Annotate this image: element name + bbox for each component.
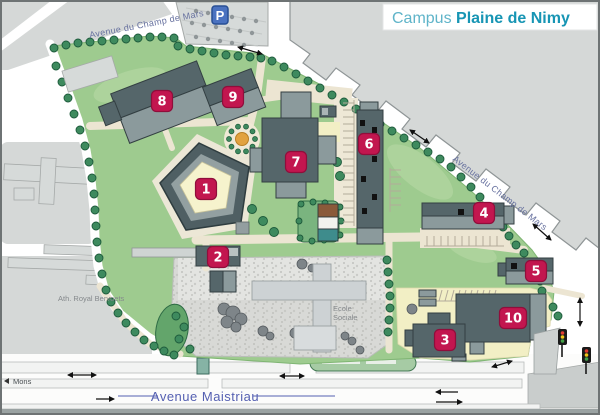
parking-dot (254, 19, 258, 23)
tree-icon (186, 345, 194, 353)
tree-icon (85, 158, 93, 166)
tree-icon (95, 254, 103, 262)
tree-icon (170, 351, 178, 359)
tree-icon (257, 54, 265, 62)
tree-icon (246, 53, 254, 61)
badge-number: 6 (364, 138, 373, 153)
label-ecole-sociale-2: Sociale (333, 313, 358, 322)
tree-icon (198, 47, 206, 55)
parking-dot (206, 11, 210, 15)
building-badge-6: 6 (359, 134, 380, 155)
tree-icon (298, 201, 304, 207)
badge-number: 7 (291, 156, 300, 171)
parking-dot (190, 21, 194, 25)
city-block (534, 328, 560, 374)
tree-icon (175, 335, 183, 343)
tree-icon (505, 232, 513, 240)
parking-dot (206, 37, 210, 41)
parking-lot: P (176, 2, 268, 47)
tree-icon (90, 190, 98, 198)
tree-icon (172, 312, 180, 320)
tree-icon (554, 312, 562, 320)
tree-icon (52, 62, 60, 70)
tree-icon (140, 336, 148, 344)
gravel-texture (172, 256, 390, 358)
gravel-tree-icon (356, 346, 364, 354)
building-badge-3: 3 (435, 330, 456, 351)
street-label-maistriau: Avenue Maistriau (151, 389, 259, 404)
garden-tree-icon (235, 124, 240, 129)
tree-icon (70, 110, 78, 118)
building-badge-9: 9 (223, 87, 244, 108)
tree-icon (259, 217, 268, 226)
garden-tree-icon (229, 144, 234, 149)
parking-dot (250, 31, 254, 35)
parking-dot (238, 29, 242, 33)
tree-icon (91, 206, 99, 214)
gravel-tree-icon (231, 322, 241, 332)
tree-icon (81, 142, 89, 150)
label-ecole-sociale-1: Ecole (333, 304, 352, 313)
gravel-tree-icon (407, 304, 417, 314)
tree-icon (50, 44, 58, 52)
parking-dot (230, 41, 234, 45)
tree-icon (146, 33, 154, 41)
tree-icon (280, 63, 288, 71)
label-mons: Mons (13, 377, 32, 386)
tree-icon (222, 51, 230, 59)
tree-icon (549, 303, 557, 311)
title-name: Plaine de Nimy (456, 10, 570, 27)
tree-icon (88, 174, 96, 182)
gravel-tree-icon (297, 259, 307, 269)
tree-icon (296, 218, 302, 224)
road-median (0, 362, 290, 373)
building-4 (422, 203, 514, 229)
building-badge-1: 1 (196, 179, 217, 200)
tree-icon (512, 241, 520, 249)
building-badge-2: 2 (208, 247, 229, 268)
badge-number: 10 (504, 312, 522, 327)
title-prefix: Campus (392, 10, 456, 27)
tree-icon (248, 205, 257, 214)
small-shed (419, 299, 436, 306)
badge-number: 3 (440, 334, 449, 349)
tree-icon (170, 34, 178, 42)
tree-icon (110, 36, 118, 44)
tree-icon (186, 45, 194, 53)
tree-icon (134, 34, 142, 42)
tree-icon (310, 199, 316, 205)
tree-icon (309, 238, 315, 244)
tree-icon (92, 222, 100, 230)
badge-number: 4 (479, 207, 488, 222)
parking-dot (218, 39, 222, 43)
badge-number: 5 (531, 265, 540, 280)
kiosk (318, 204, 338, 241)
tree-icon (388, 127, 396, 135)
campus-map: P (0, 0, 600, 415)
tree-icon (386, 292, 394, 300)
small-shed (419, 290, 436, 297)
parking-dot (214, 25, 218, 29)
map-canvas: P (0, 0, 600, 415)
garden-tree-icon (244, 124, 249, 129)
tree-icon (270, 228, 279, 237)
tree-icon (62, 41, 70, 49)
tree-icon (292, 70, 300, 78)
small-shed (236, 222, 249, 234)
gravel-tree-icon (266, 332, 274, 340)
gravel-tree-icon (348, 337, 356, 345)
lane-strip (0, 404, 540, 409)
parking-dot (242, 43, 246, 47)
garden-tree-icon (253, 137, 258, 142)
tree-icon (150, 342, 158, 350)
tree-icon (114, 309, 122, 317)
tree-icon (234, 52, 242, 60)
garden-tree-icon (227, 137, 232, 142)
garden-center (236, 133, 249, 146)
parking-dot (242, 17, 246, 21)
building-badge-10: 10 (500, 308, 527, 329)
tree-icon (447, 163, 455, 171)
bus-shelter (197, 358, 209, 374)
tree-icon (304, 77, 312, 85)
gravel-esplanade (172, 256, 390, 358)
tree-icon (436, 155, 444, 163)
tree-icon (180, 323, 188, 331)
tree-icon (383, 256, 391, 264)
tree-icon (102, 286, 110, 294)
tree-icon (412, 141, 420, 149)
gravel-tree-icon (341, 332, 349, 340)
tree-icon (457, 173, 465, 181)
tree-icon (520, 249, 528, 257)
tree-icon (424, 148, 432, 156)
tree-icon (385, 280, 393, 288)
tree-icon (386, 304, 394, 312)
tree-icon (400, 134, 408, 142)
tree-icon (122, 35, 130, 43)
building-badge-7: 7 (286, 152, 307, 173)
tree-icon (476, 193, 484, 201)
parking-dot (226, 27, 230, 31)
tree-icon (297, 235, 303, 241)
building-badge-4: 4 (474, 203, 495, 224)
parking-dot (202, 23, 206, 27)
building-badge-5: 5 (526, 261, 547, 282)
parking-dot (230, 15, 234, 19)
tree-icon (340, 98, 348, 106)
parking-dot (194, 35, 198, 39)
tree-icon (328, 91, 336, 99)
offcampus-building (14, 188, 34, 200)
tree-icon (384, 268, 392, 276)
building-badge-8: 8 (152, 91, 173, 112)
badge-number: 1 (201, 183, 210, 198)
title-text: Campus Plaine de Nimy (392, 10, 570, 27)
tree-icon (385, 316, 393, 324)
label-ath-royal-bervoets: Ath. Royal Bervoets (58, 294, 125, 303)
badge-number: 2 (213, 251, 222, 266)
garden-tree-icon (250, 129, 255, 134)
lane-strip (222, 379, 522, 388)
tree-icon (64, 94, 72, 102)
offcampus-building (39, 158, 56, 205)
tree-icon (122, 319, 130, 327)
parking-letter: P (216, 8, 225, 23)
tree-icon (158, 33, 166, 41)
tree-icon (384, 328, 392, 336)
tree-icon (268, 57, 276, 65)
garden-tree-icon (244, 149, 249, 154)
garden-tree-icon (235, 149, 240, 154)
badge-number: 9 (228, 91, 237, 106)
garden-tree-icon (229, 129, 234, 134)
tree-icon (316, 84, 324, 92)
tree-icon (467, 183, 475, 191)
tree-icon (98, 270, 106, 278)
tree-icon (76, 126, 84, 134)
badge-number: 8 (157, 95, 166, 110)
tree-icon (174, 42, 182, 50)
tree-icon (210, 49, 218, 57)
parking-sign: P (212, 6, 228, 24)
tree-icon (93, 238, 101, 246)
tree-icon (74, 39, 82, 47)
map-title: Campus Plaine de Nimy (383, 4, 597, 30)
tree-icon (338, 218, 344, 224)
tree-icon (160, 347, 168, 355)
tree-icon (131, 328, 139, 336)
